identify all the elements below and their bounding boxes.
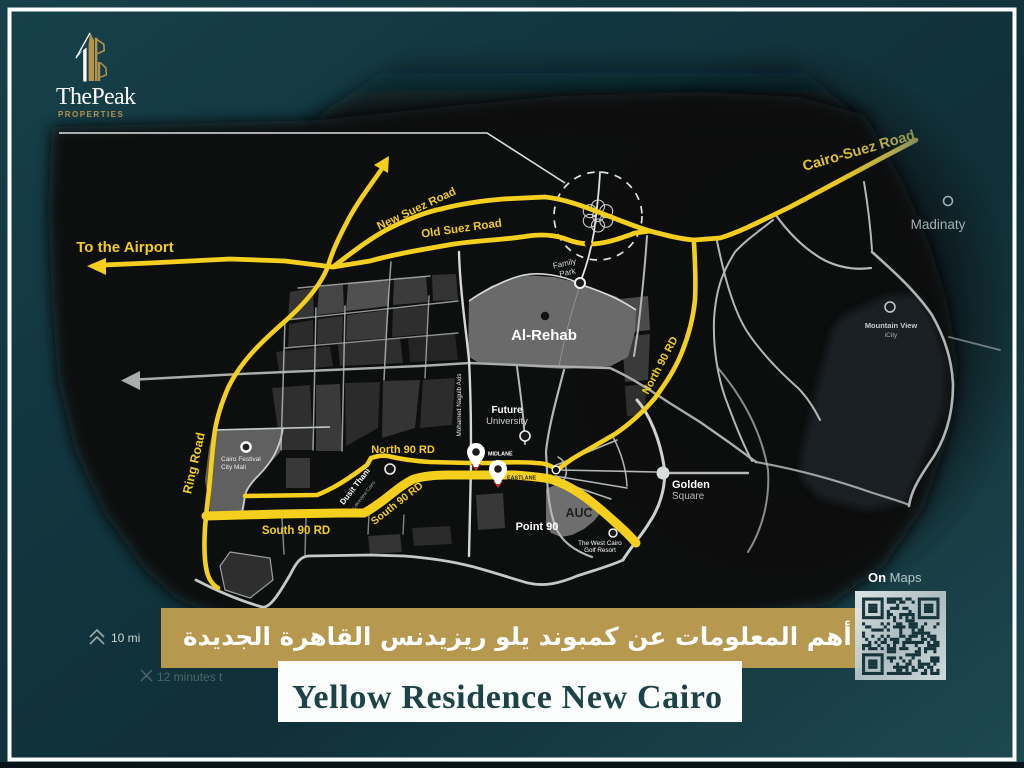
svg-text:Golf Resort: Golf Resort — [584, 547, 616, 554]
svg-text:iCity: iCity — [885, 332, 898, 339]
svg-text:To the Airport: To the Airport — [76, 239, 174, 256]
svg-text:ThePeak: ThePeak — [56, 84, 136, 110]
svg-text:12 minutes t: 12 minutes t — [157, 670, 223, 684]
svg-text:Cairo Festival: Cairo Festival — [221, 456, 261, 463]
svg-text:AUC: AUC — [565, 506, 592, 520]
svg-text:The West Cairo: The West Cairo — [578, 540, 622, 547]
svg-text:Madinaty: Madinaty — [911, 217, 966, 232]
svg-text:Mountain View: Mountain View — [865, 321, 918, 330]
svg-text:North 90 RD: North 90 RD — [371, 444, 435, 456]
svg-text:Mohamed Naguib Axis: Mohamed Naguib Axis — [456, 373, 463, 436]
svg-text:Square: Square — [672, 491, 705, 502]
svg-text:Point 90: Point 90 — [516, 521, 559, 533]
svg-text:On Maps: On Maps — [868, 570, 922, 585]
svg-text:South 90 RD: South 90 RD — [262, 525, 330, 537]
svg-text:10 mi: 10 mi — [111, 631, 140, 645]
svg-text:City Mall: City Mall — [221, 464, 246, 471]
svg-text:Future: Future — [491, 405, 523, 416]
svg-text:Yellow Residence New Cairo: Yellow Residence New Cairo — [292, 679, 722, 716]
svg-text:MIDLANE: MIDLANE — [488, 452, 513, 458]
svg-text:Al-Rehab: Al-Rehab — [511, 327, 577, 344]
svg-text:University: University — [486, 416, 528, 427]
svg-text:PROPERTIES: PROPERTIES — [58, 110, 125, 119]
svg-text:EASTLANE: EASTLANE — [507, 476, 536, 482]
svg-text:Golden: Golden — [672, 479, 710, 491]
